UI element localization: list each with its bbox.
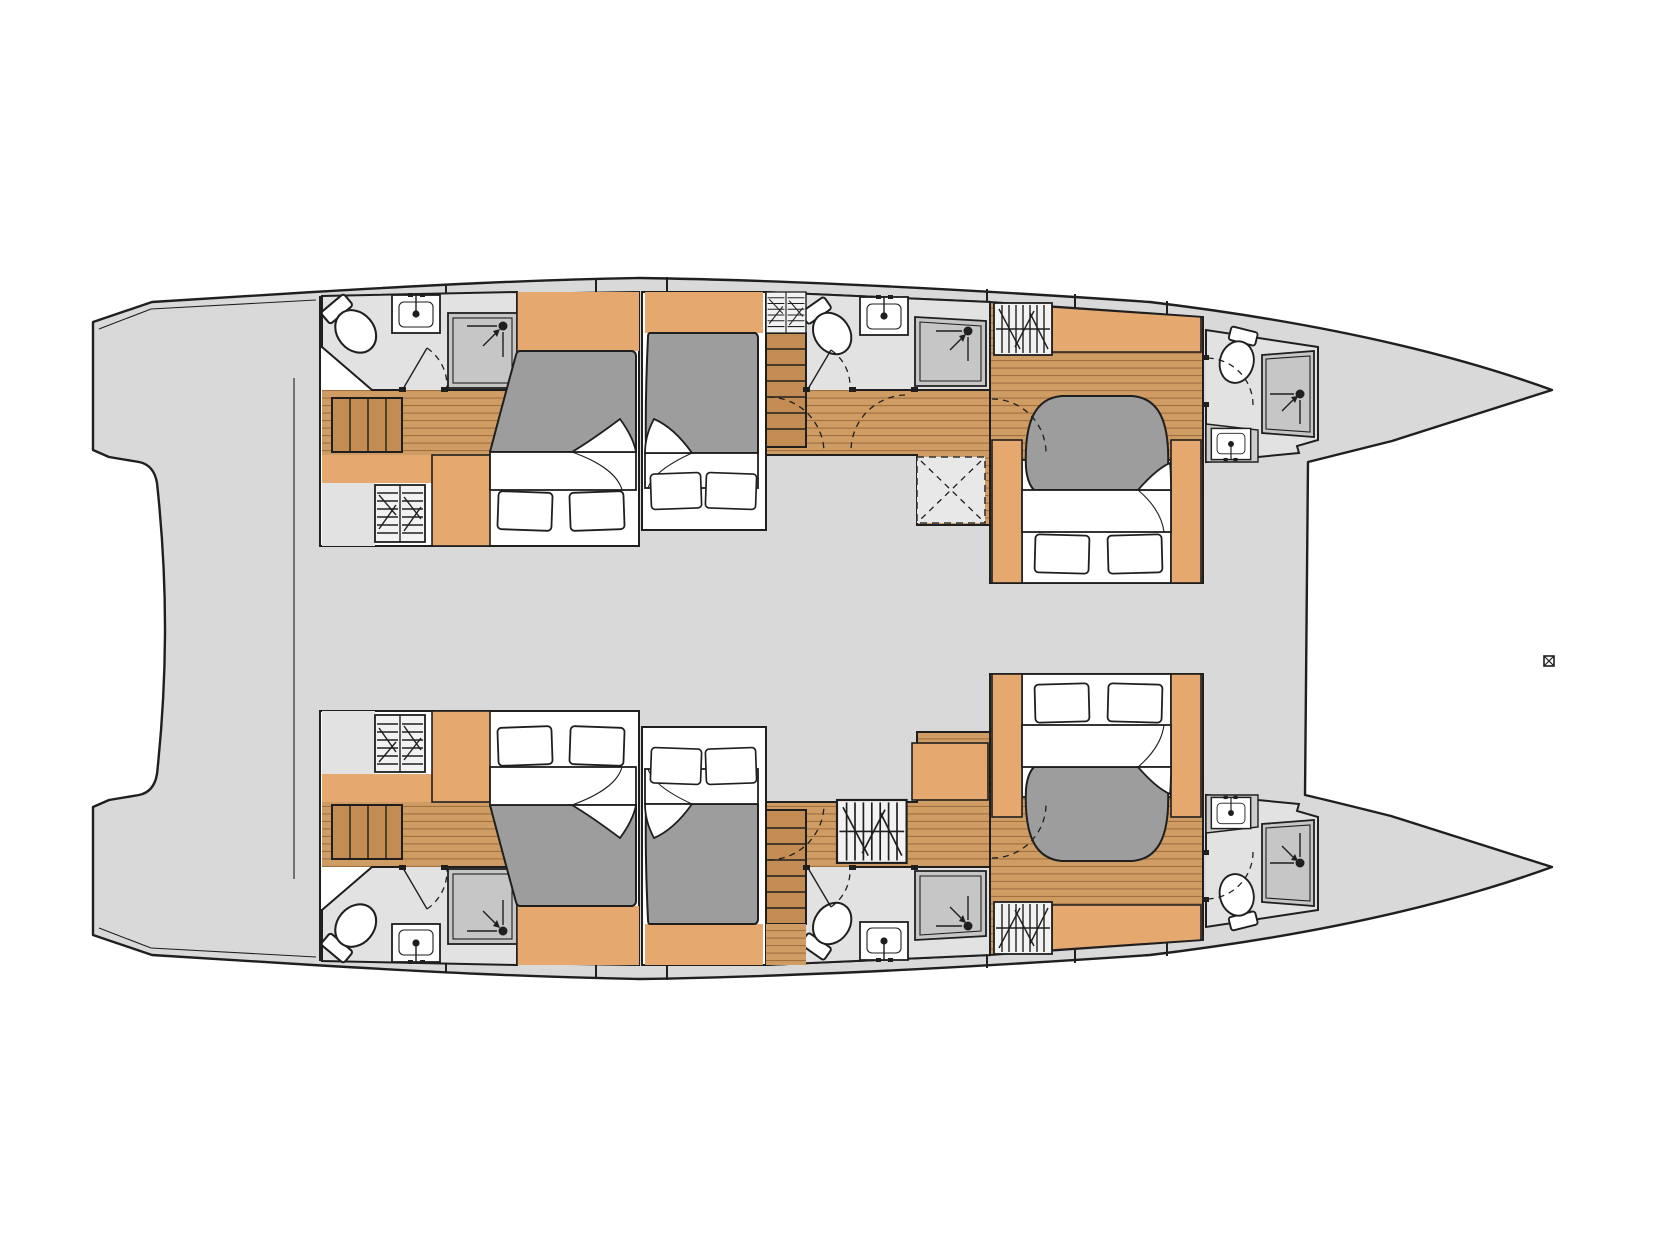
wardrobe-mid-bottom [837, 800, 907, 863]
catamaran-floorplan [0, 0, 1677, 1257]
floorplan-page [0, 0, 1677, 1257]
cabinet [912, 743, 988, 800]
deck-hatch [917, 457, 985, 523]
wardrobe-mid [766, 292, 806, 333]
boxed-x-marker [1544, 656, 1554, 666]
floor-patch [766, 924, 806, 965]
